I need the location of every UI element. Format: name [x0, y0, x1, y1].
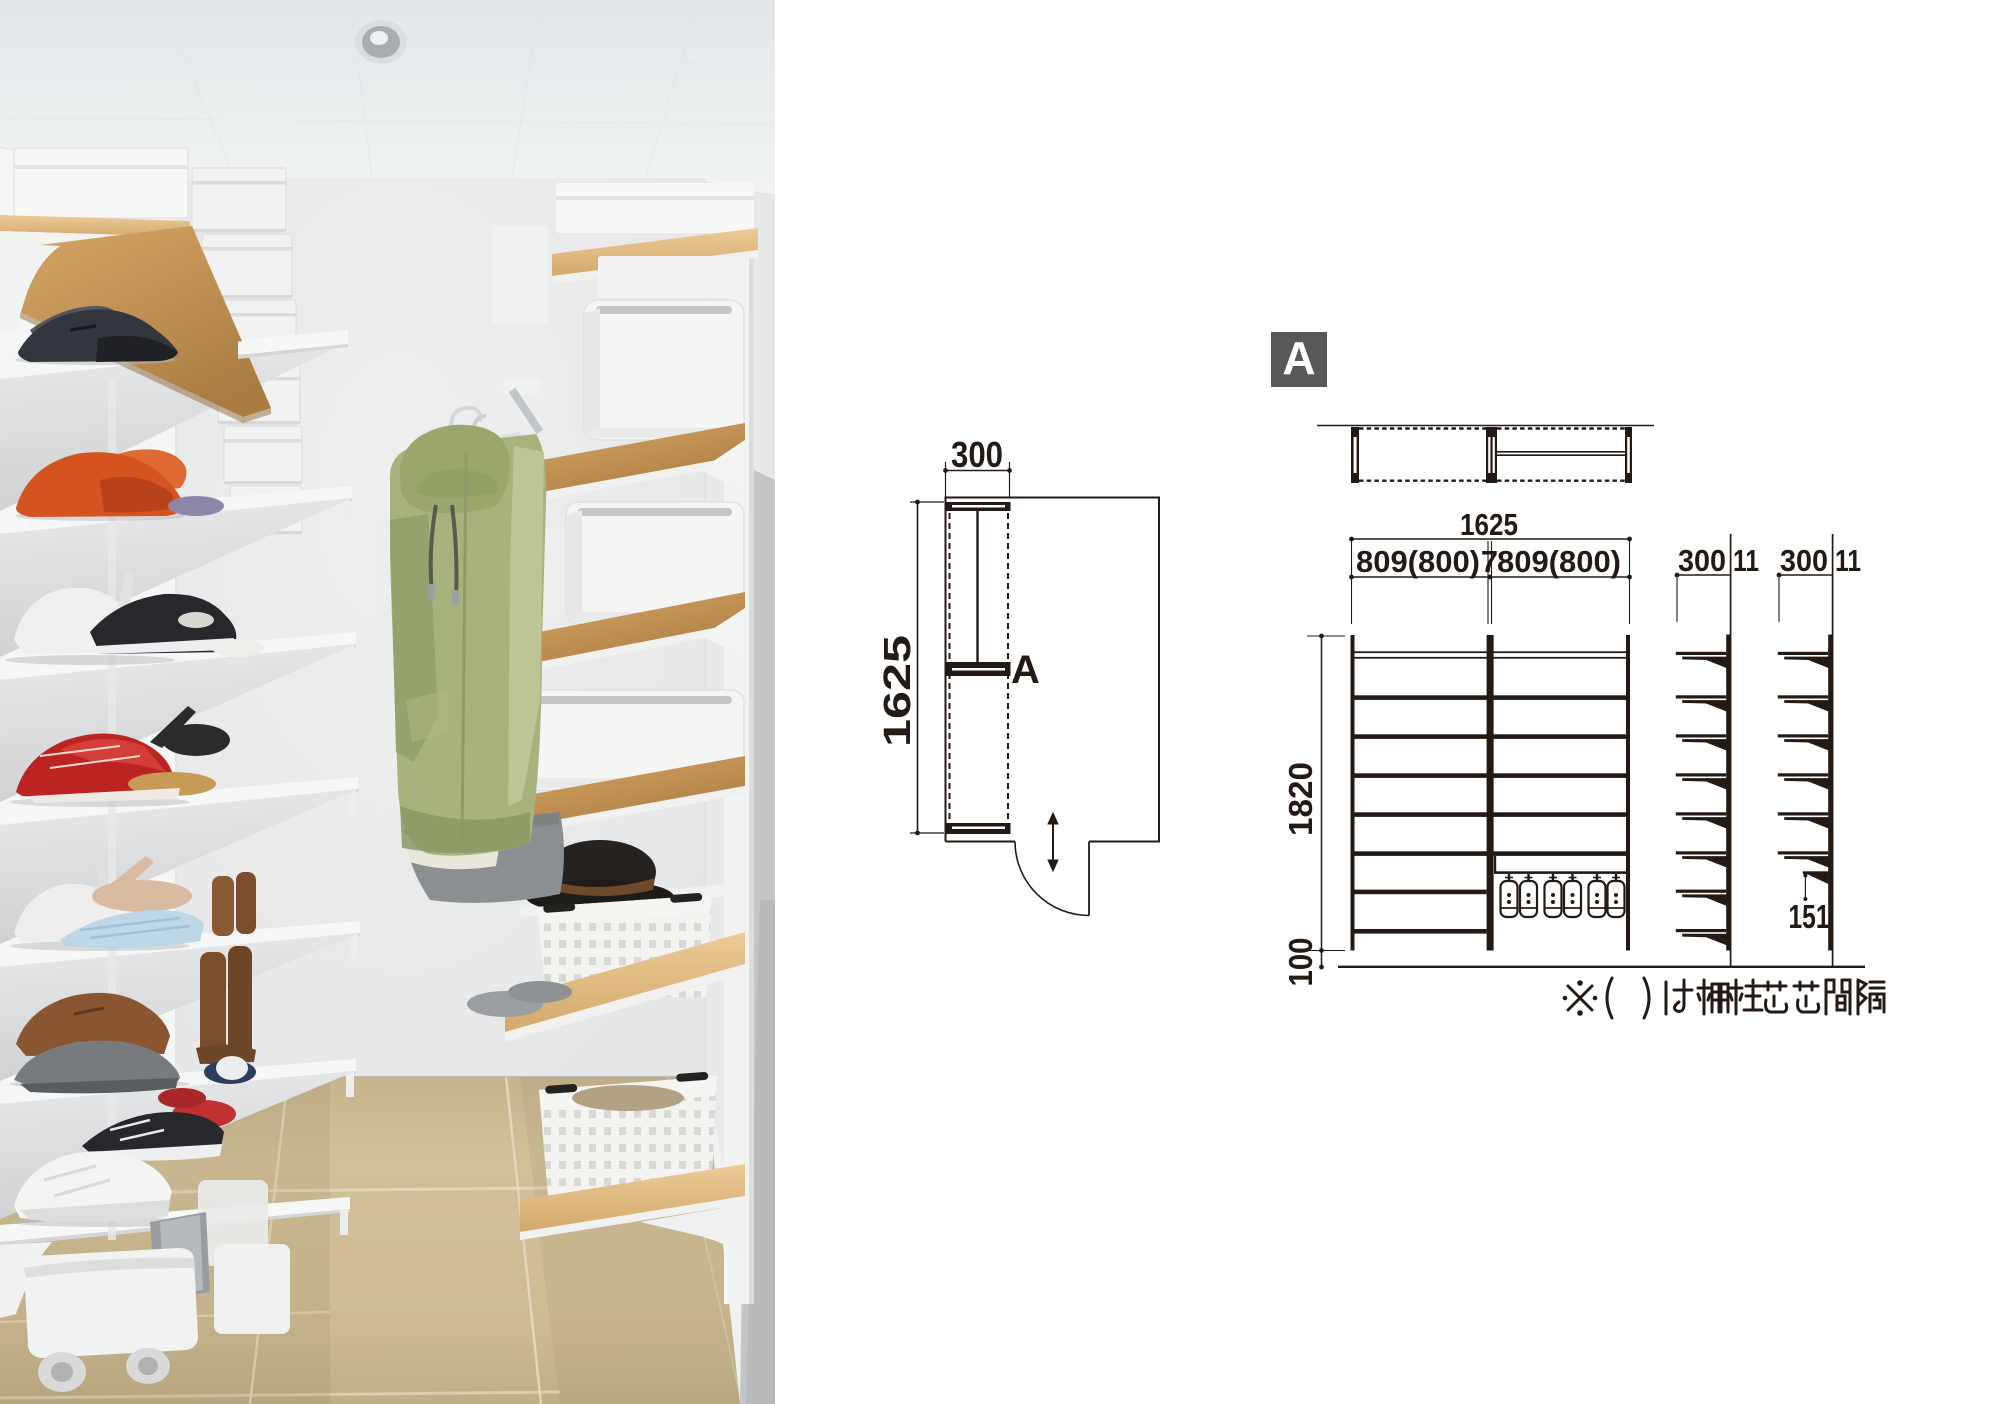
svg-text:1625: 1625 [1460, 507, 1518, 542]
svg-text:300: 300 [1678, 543, 1726, 578]
svg-text:A: A [1282, 332, 1315, 384]
svg-text:809(800): 809(800) [1497, 544, 1621, 579]
svg-text:1625: 1625 [877, 635, 919, 747]
svg-text:300: 300 [951, 434, 1003, 475]
svg-text:1820: 1820 [1282, 762, 1319, 836]
svg-text:809(800): 809(800) [1356, 544, 1480, 579]
svg-text:151: 151 [1789, 898, 1830, 935]
svg-text:11: 11 [1835, 543, 1861, 578]
svg-text:300: 300 [1780, 543, 1828, 578]
svg-text:11: 11 [1733, 543, 1759, 578]
svg-text:A: A [1011, 648, 1040, 692]
svg-text:7: 7 [1481, 544, 1498, 579]
svg-text:100: 100 [1282, 938, 1319, 987]
